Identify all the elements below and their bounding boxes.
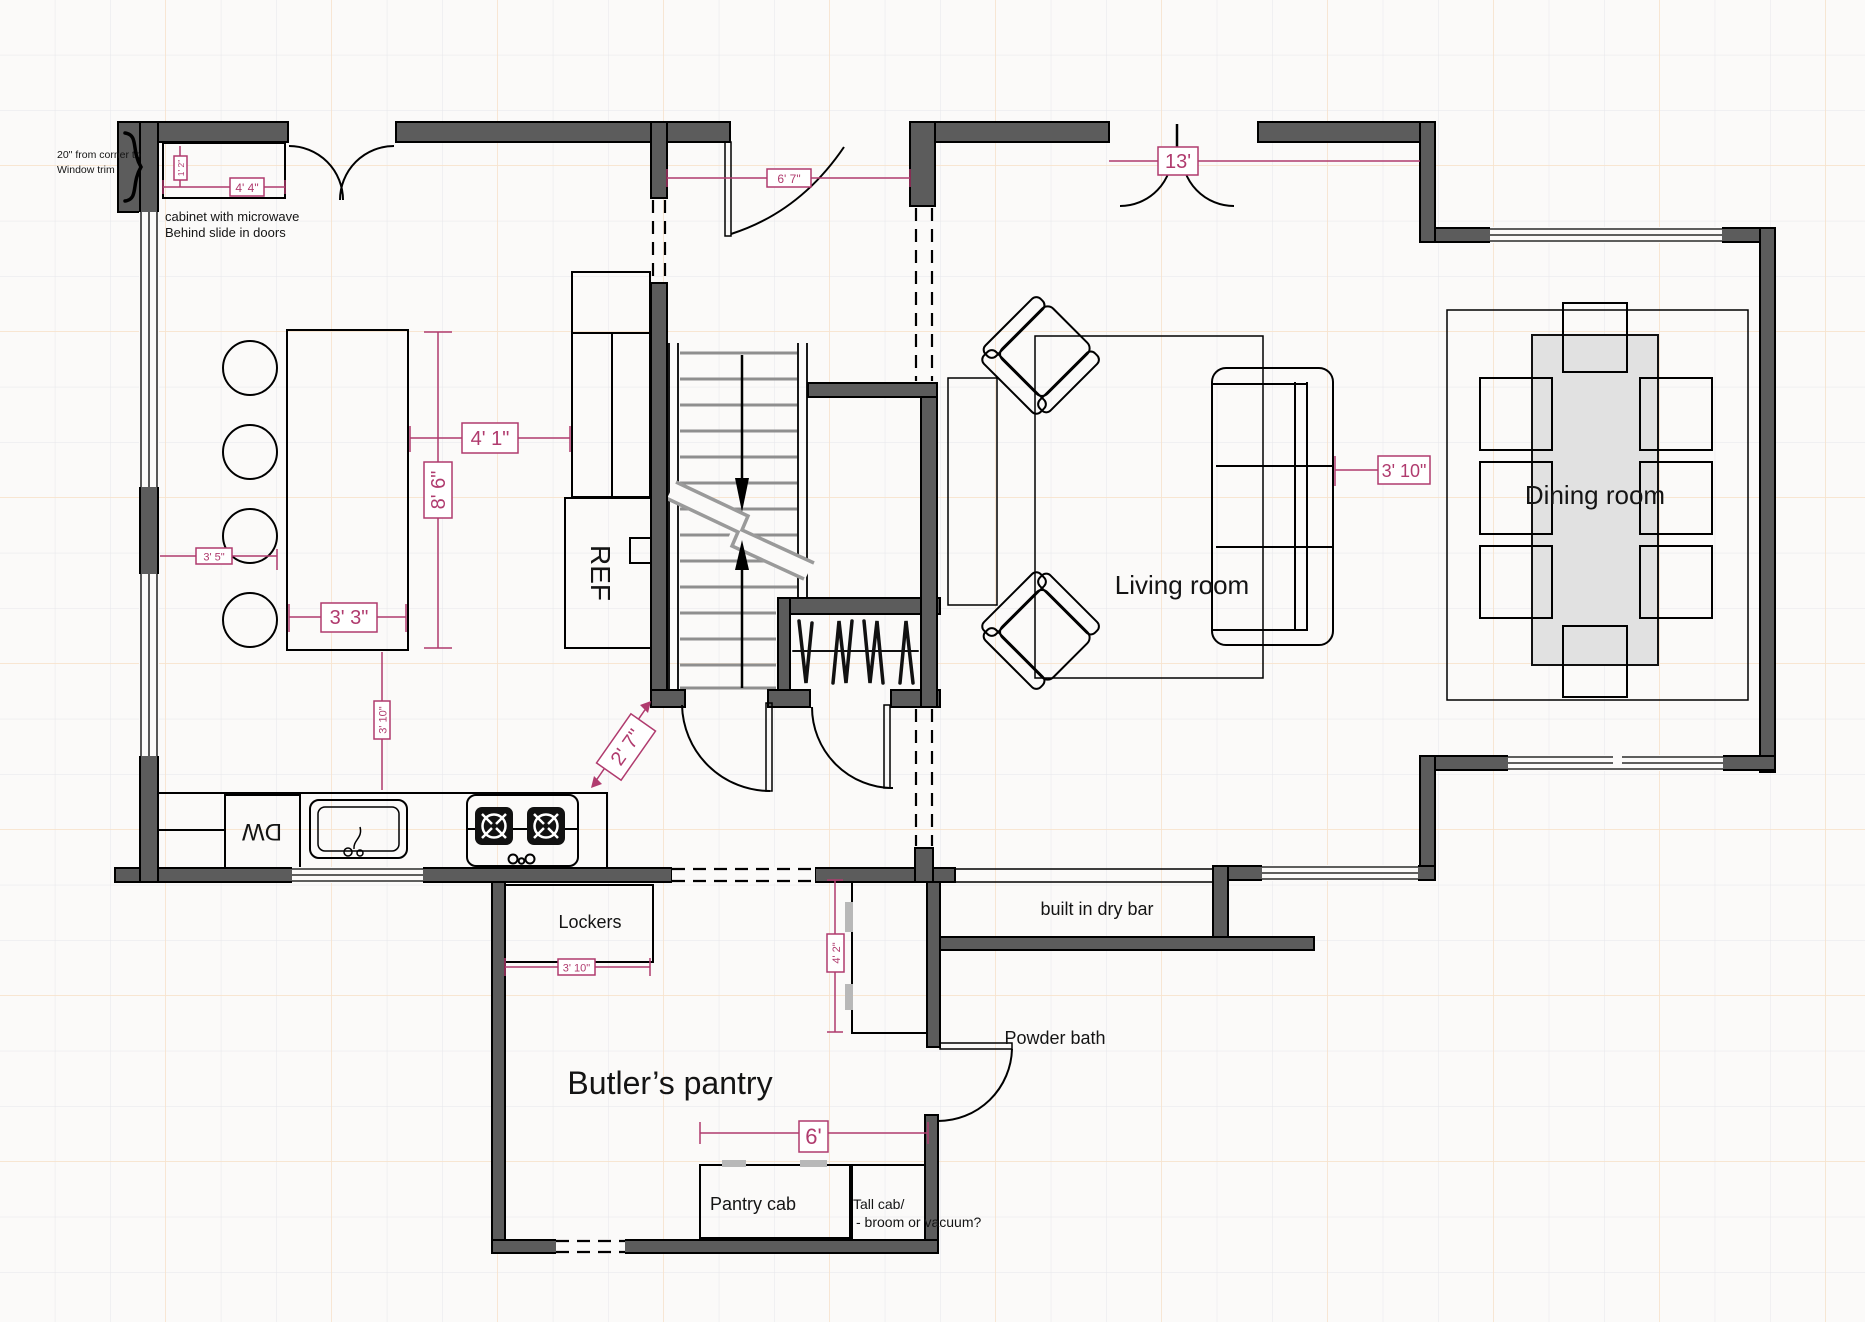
dim-label: 3' 10"	[378, 706, 390, 734]
window	[1490, 227, 1722, 243]
wall-pier	[910, 122, 935, 206]
dining-room-label: Dining room	[1525, 480, 1665, 510]
butlers-pantry-label: Butler’s pantry	[567, 1065, 772, 1101]
wall-segment	[910, 122, 1109, 142]
wall-segment	[768, 690, 810, 707]
tall-cab-label-line1: Tall cab/	[853, 1196, 904, 1212]
dim-label: 3' 3"	[330, 607, 369, 629]
lockers-label: Lockers	[558, 912, 621, 932]
wall-segment	[778, 598, 940, 614]
wall-segment	[1258, 122, 1435, 142]
burner	[527, 807, 565, 845]
wall-segment	[921, 383, 937, 707]
microwave-note-line1: cabinet with microwave	[165, 209, 299, 224]
window	[1262, 865, 1418, 881]
wall-segment	[651, 283, 667, 707]
living-room-label: Living room	[1115, 570, 1249, 600]
window	[292, 867, 423, 883]
wall-segment	[492, 882, 505, 1253]
wall-segment	[778, 598, 790, 690]
powder-bath-label: Powder bath	[1004, 1028, 1105, 1048]
wall-pier	[651, 122, 667, 198]
wall-segment	[927, 882, 940, 1047]
ref-label: REF	[585, 545, 616, 601]
dim-label: 6' 7"	[777, 172, 800, 186]
window	[139, 212, 159, 487]
dim-label: 4' 1"	[471, 428, 510, 450]
dim-label: 3' 5"	[203, 552, 224, 564]
dim-label: 4' 2"	[831, 942, 843, 963]
dry-bar-label: built in dry bar	[1040, 899, 1153, 919]
dim-label: 8' 6"	[428, 471, 450, 510]
wall-segment	[1213, 866, 1228, 937]
wall-segment	[925, 1115, 938, 1253]
wall-segment	[938, 937, 1314, 950]
window	[1508, 755, 1723, 771]
dim-label: 3' 10"	[1382, 461, 1427, 481]
wall-segment	[1760, 228, 1775, 772]
wall-segment	[1420, 756, 1435, 880]
dim-label: 1' 2"	[176, 160, 186, 176]
corner-note-line1: 20" from corner to	[57, 149, 141, 161]
wall-segment	[1420, 122, 1435, 242]
corner-note-line2: Window trim	[57, 164, 115, 176]
dim-label: 4' 4"	[235, 181, 258, 195]
dim-label: 3' 10"	[563, 963, 591, 975]
wall-segment	[396, 122, 730, 142]
window	[139, 574, 159, 756]
dw-label: DW	[242, 818, 282, 845]
wall-segment	[808, 383, 937, 397]
dim-label: 13'	[1165, 151, 1191, 173]
wall-segment	[651, 690, 685, 707]
pantry-cab-label: Pantry cab	[710, 1194, 796, 1214]
tall-cab-label-line2: - broom or vacuum?	[856, 1214, 981, 1230]
wall-segment	[915, 848, 933, 882]
microwave-note-line2: Behind slide in doors	[165, 225, 286, 240]
dim-label: 6'	[805, 1124, 821, 1149]
floor-plan-canvas: REF DW	[0, 0, 1865, 1322]
burner	[475, 807, 513, 845]
